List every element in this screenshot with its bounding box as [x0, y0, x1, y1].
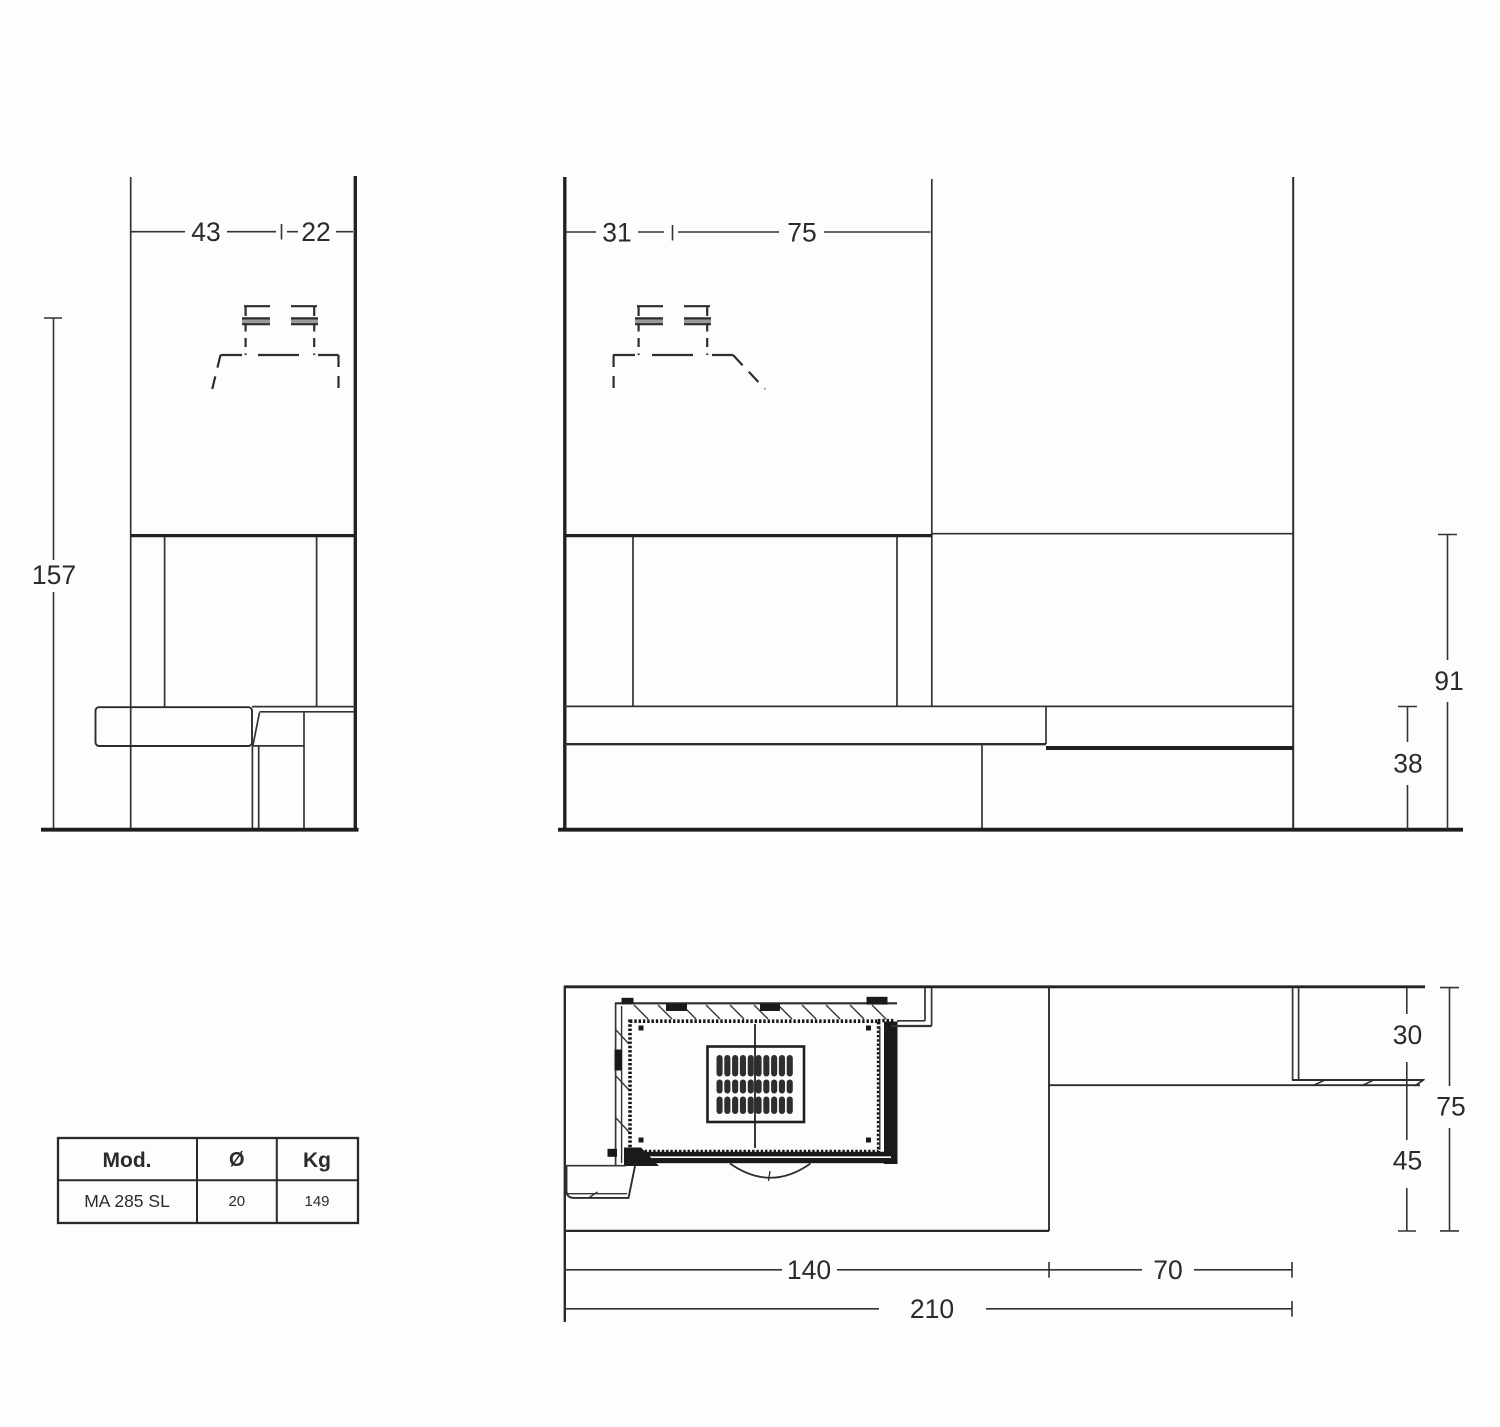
svg-text:22: 22 [301, 217, 330, 247]
svg-text:38: 38 [1393, 749, 1422, 779]
svg-text:91: 91 [1434, 666, 1463, 696]
svg-text:75: 75 [787, 218, 816, 248]
svg-text:30: 30 [1393, 1020, 1422, 1050]
svg-text:210: 210 [910, 1294, 954, 1324]
svg-text:31: 31 [602, 218, 631, 248]
svg-text:43: 43 [191, 217, 220, 247]
svg-text:140: 140 [787, 1255, 831, 1285]
svg-text:70: 70 [1153, 1255, 1182, 1285]
svg-text:Mod.: Mod. [103, 1149, 152, 1172]
svg-text:157: 157 [32, 560, 76, 590]
svg-text:20: 20 [228, 1193, 245, 1210]
svg-text:MA 285 SL: MA 285 SL [84, 1191, 170, 1211]
svg-text:Ø: Ø [229, 1149, 245, 1171]
svg-text:149: 149 [304, 1193, 329, 1210]
svg-text:45: 45 [1393, 1146, 1422, 1176]
svg-text:75: 75 [1436, 1092, 1465, 1122]
svg-text:Kg: Kg [303, 1149, 331, 1172]
